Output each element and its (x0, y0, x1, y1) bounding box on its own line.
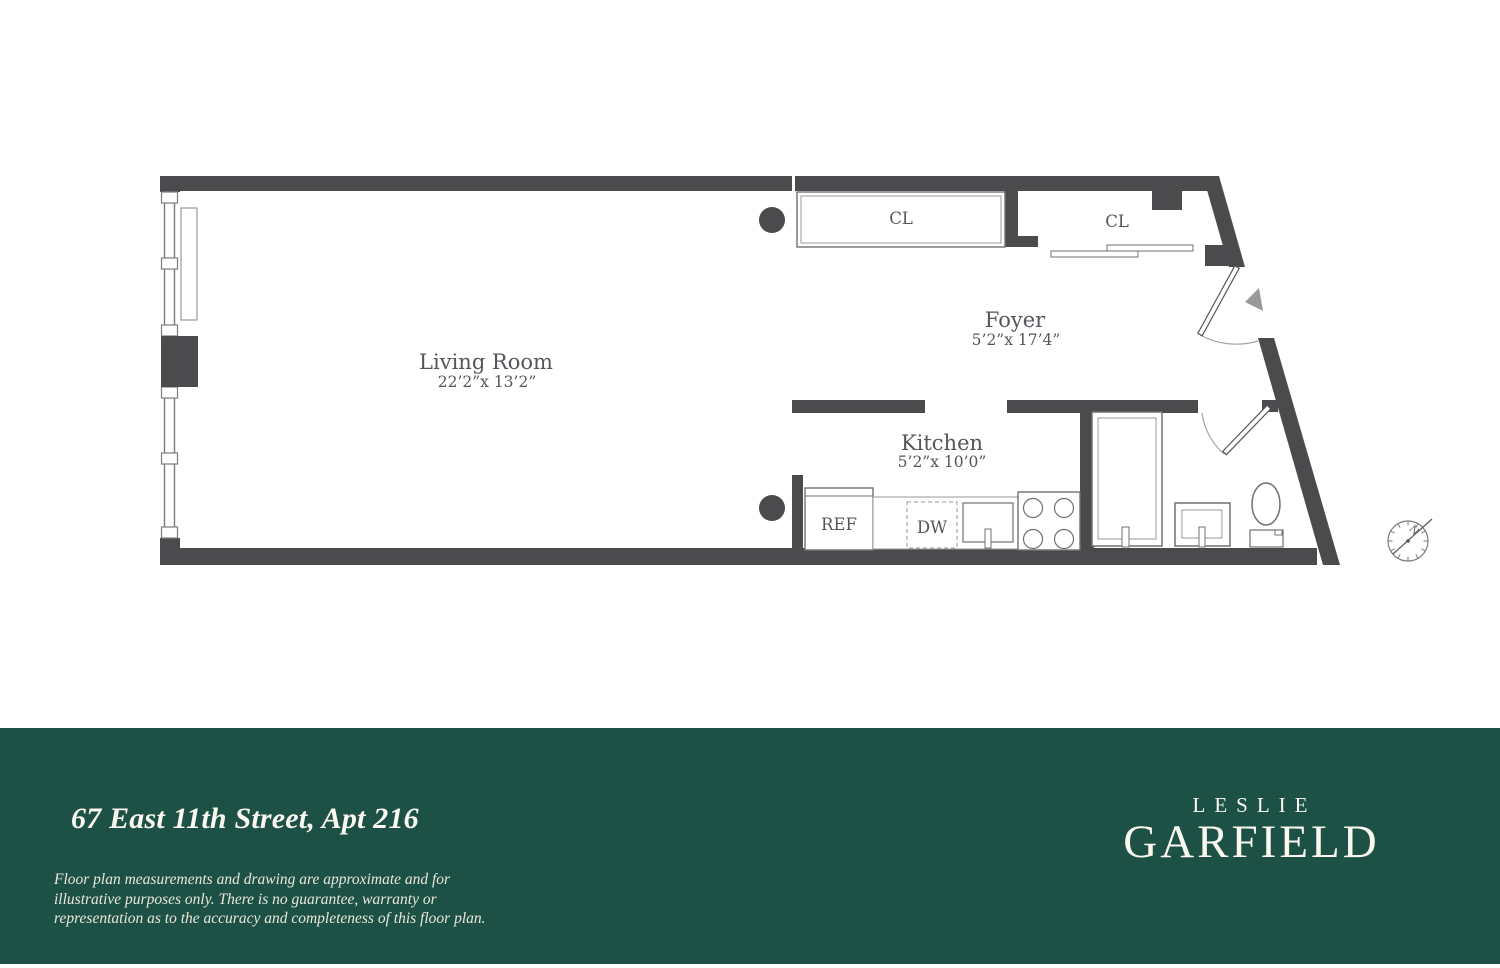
window-mullion (162, 453, 178, 464)
kitchen-left-stub-wall (792, 475, 803, 549)
kitchen-top-wall (792, 400, 925, 413)
stove-burner (1055, 530, 1074, 549)
walls (160, 175, 1340, 565)
floorplan-sheet: { "plan": { "living_room": { "label": "L… (0, 0, 1500, 964)
window-wall-column (161, 336, 198, 387)
bath-door-leaf (1223, 405, 1271, 455)
disclaimer-line: representation as to the accuracy and co… (54, 909, 486, 929)
top-wall (160, 176, 1219, 191)
compass-icon: N (1388, 519, 1432, 561)
stove-burner (1024, 499, 1043, 518)
brand-name-top: LESLIE (1099, 793, 1410, 818)
column-foyer (759, 207, 785, 233)
shower-handle (1122, 527, 1129, 547)
bath-sink-handle (1199, 527, 1205, 547)
bathroom-top-wall (1007, 400, 1198, 413)
radiator (181, 208, 197, 320)
kitchen-label: Kitchen (901, 431, 983, 455)
bottom-left-corner (160, 538, 180, 565)
window-mullion (162, 258, 178, 269)
inter-closet-wall (1004, 188, 1018, 247)
address-title: 67 East 11th Street, Apt 216 (71, 802, 419, 836)
top-left-corner (160, 176, 180, 192)
foyer-dims: 5’2”x 17’4” (972, 331, 1061, 349)
stove-burner (1055, 499, 1074, 518)
column-kitchen (759, 495, 785, 521)
toilet-valve (1275, 530, 1282, 535)
bathroom (1092, 405, 1283, 547)
brand-name-bottom: GARFIELD (1093, 819, 1410, 866)
living-room-dims: 22’2”x 13’2” (438, 373, 537, 391)
disclaimer-line: Floor plan measurements and drawing are … (54, 870, 486, 890)
kitchen-dims: 5’2”x 10’0” (898, 453, 987, 471)
closet-right (1051, 245, 1193, 257)
window-mullion (162, 527, 178, 538)
bottom-wall (160, 548, 1317, 565)
sliding-door-right-panel (1107, 245, 1193, 251)
closet-notch (1152, 191, 1182, 210)
entry-door (1198, 266, 1263, 344)
living-room-label: Living Room (419, 350, 553, 374)
window-wall (161, 192, 198, 538)
room-labels: Living Room 22’2”x 13’2” Foyer 5’2”x 17’… (419, 209, 1129, 537)
bath-door-swing-arc (1202, 413, 1224, 454)
entry-door-leaf (1198, 266, 1239, 336)
refrigerator-label: REF (821, 515, 857, 534)
disclaimer-line: illustrative purposes only. There is no … (54, 890, 486, 910)
disclaimer-text: Floor plan measurements and drawing are … (54, 870, 486, 929)
window-mullion (162, 192, 178, 203)
inter-closet-wall-stub (1018, 236, 1038, 247)
window-mullion (162, 325, 178, 336)
brand-logo: LESLIE GARFIELD (1090, 793, 1410, 866)
sliding-door-left-panel (1051, 251, 1138, 257)
closet-right-label: CL (1105, 212, 1129, 231)
shower (1092, 412, 1162, 546)
entry-door-swing-arc (1200, 335, 1258, 344)
toilet-bowl (1252, 483, 1280, 525)
foyer-label: Foyer (985, 308, 1046, 332)
dishwasher-label: DW (917, 518, 947, 537)
entry-arrow-icon (1245, 288, 1263, 311)
window-mullion (162, 387, 178, 398)
compass-center-dot (1406, 539, 1410, 543)
wall-joint-gap (792, 175, 795, 192)
stove-burner (1024, 530, 1043, 549)
kitchen-sink-faucet (985, 529, 991, 548)
closet-left-label: CL (889, 209, 913, 228)
